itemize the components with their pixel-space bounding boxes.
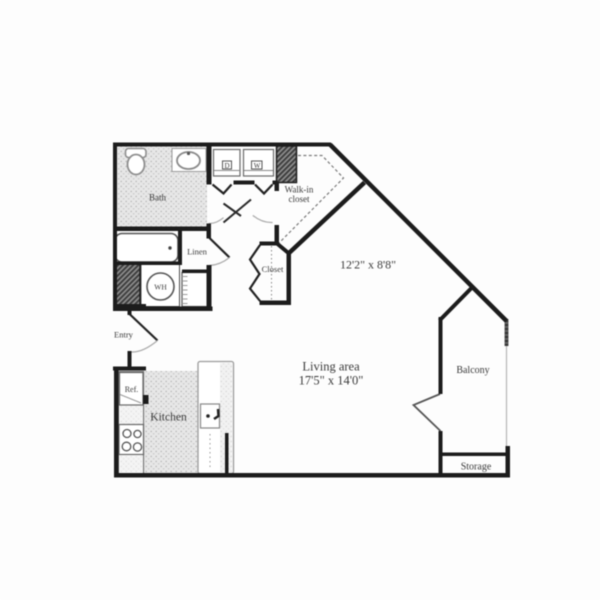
- svg-text:Walk-in: Walk-in: [285, 185, 314, 195]
- svg-text:Bath: Bath: [149, 193, 166, 203]
- svg-text:Storage: Storage: [461, 462, 492, 473]
- svg-text:Linen: Linen: [187, 247, 208, 257]
- svg-text:Kitchen: Kitchen: [150, 412, 187, 424]
- svg-text:Closet: Closet: [262, 264, 284, 274]
- svg-text:Entry: Entry: [114, 330, 134, 340]
- svg-text:Balcony: Balcony: [456, 365, 489, 376]
- svg-text:W: W: [254, 162, 261, 170]
- svg-text:Living area: Living area: [302, 360, 360, 374]
- svg-text:WH: WH: [154, 283, 167, 292]
- svg-text:17'5" x 14'0": 17'5" x 14'0": [299, 374, 364, 388]
- svg-text:Ref.: Ref.: [125, 385, 139, 394]
- svg-text:closet: closet: [289, 194, 310, 204]
- svg-text:D: D: [224, 162, 229, 170]
- svg-text:12'2" x 8'8": 12'2" x 8'8": [340, 258, 396, 272]
